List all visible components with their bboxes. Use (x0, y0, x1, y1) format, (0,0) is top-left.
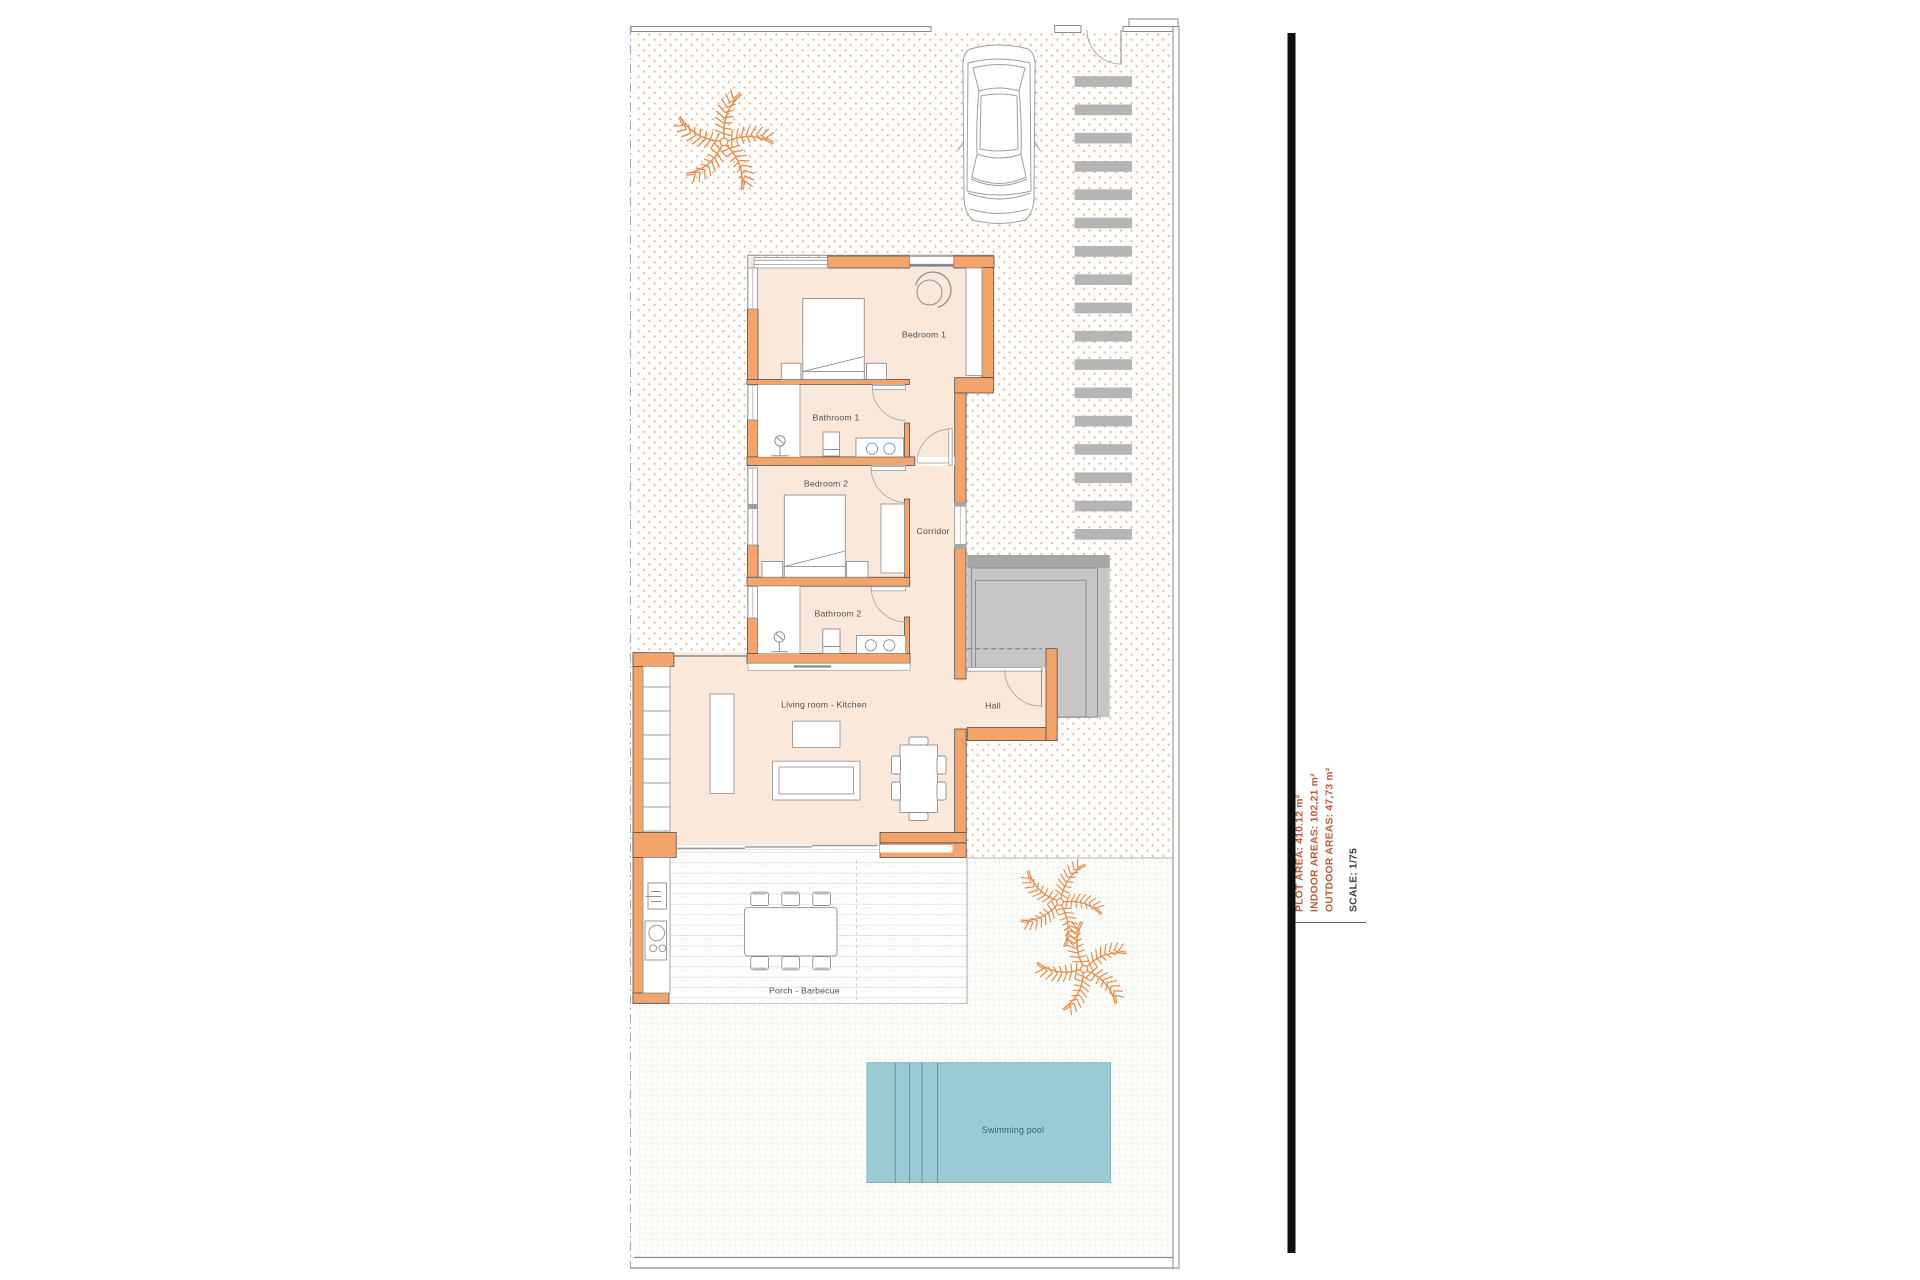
svg-text:Hall: Hall (985, 701, 1001, 711)
svg-text:Porch - Barbecue: Porch - Barbecue (769, 986, 840, 996)
svg-text:SCALE: 1/75: SCALE: 1/75 (1349, 848, 1360, 912)
svg-text:Living room - Kitchen: Living room - Kitchen (781, 700, 867, 710)
svg-text:OUTDOOR AREAS: 47,73 m²: OUTDOOR AREAS: 47,73 m² (1325, 767, 1336, 912)
svg-text:Bedroom 2: Bedroom 2 (804, 479, 848, 489)
svg-text:Swimming pool: Swimming pool (982, 1125, 1044, 1135)
svg-text:PLOT AREA: 410.12 m²: PLOT AREA: 410.12 m² (1295, 794, 1306, 912)
svg-text:Bedroom 1: Bedroom 1 (902, 330, 946, 340)
svg-text:Corridor: Corridor (917, 526, 950, 536)
svg-text:Bathroom 1: Bathroom 1 (813, 413, 860, 423)
svg-text:Bathroom 2: Bathroom 2 (815, 609, 862, 619)
svg-text:INDOOR AREAS: 102,21 m²: INDOOR AREAS: 102,21 m² (1310, 773, 1321, 912)
